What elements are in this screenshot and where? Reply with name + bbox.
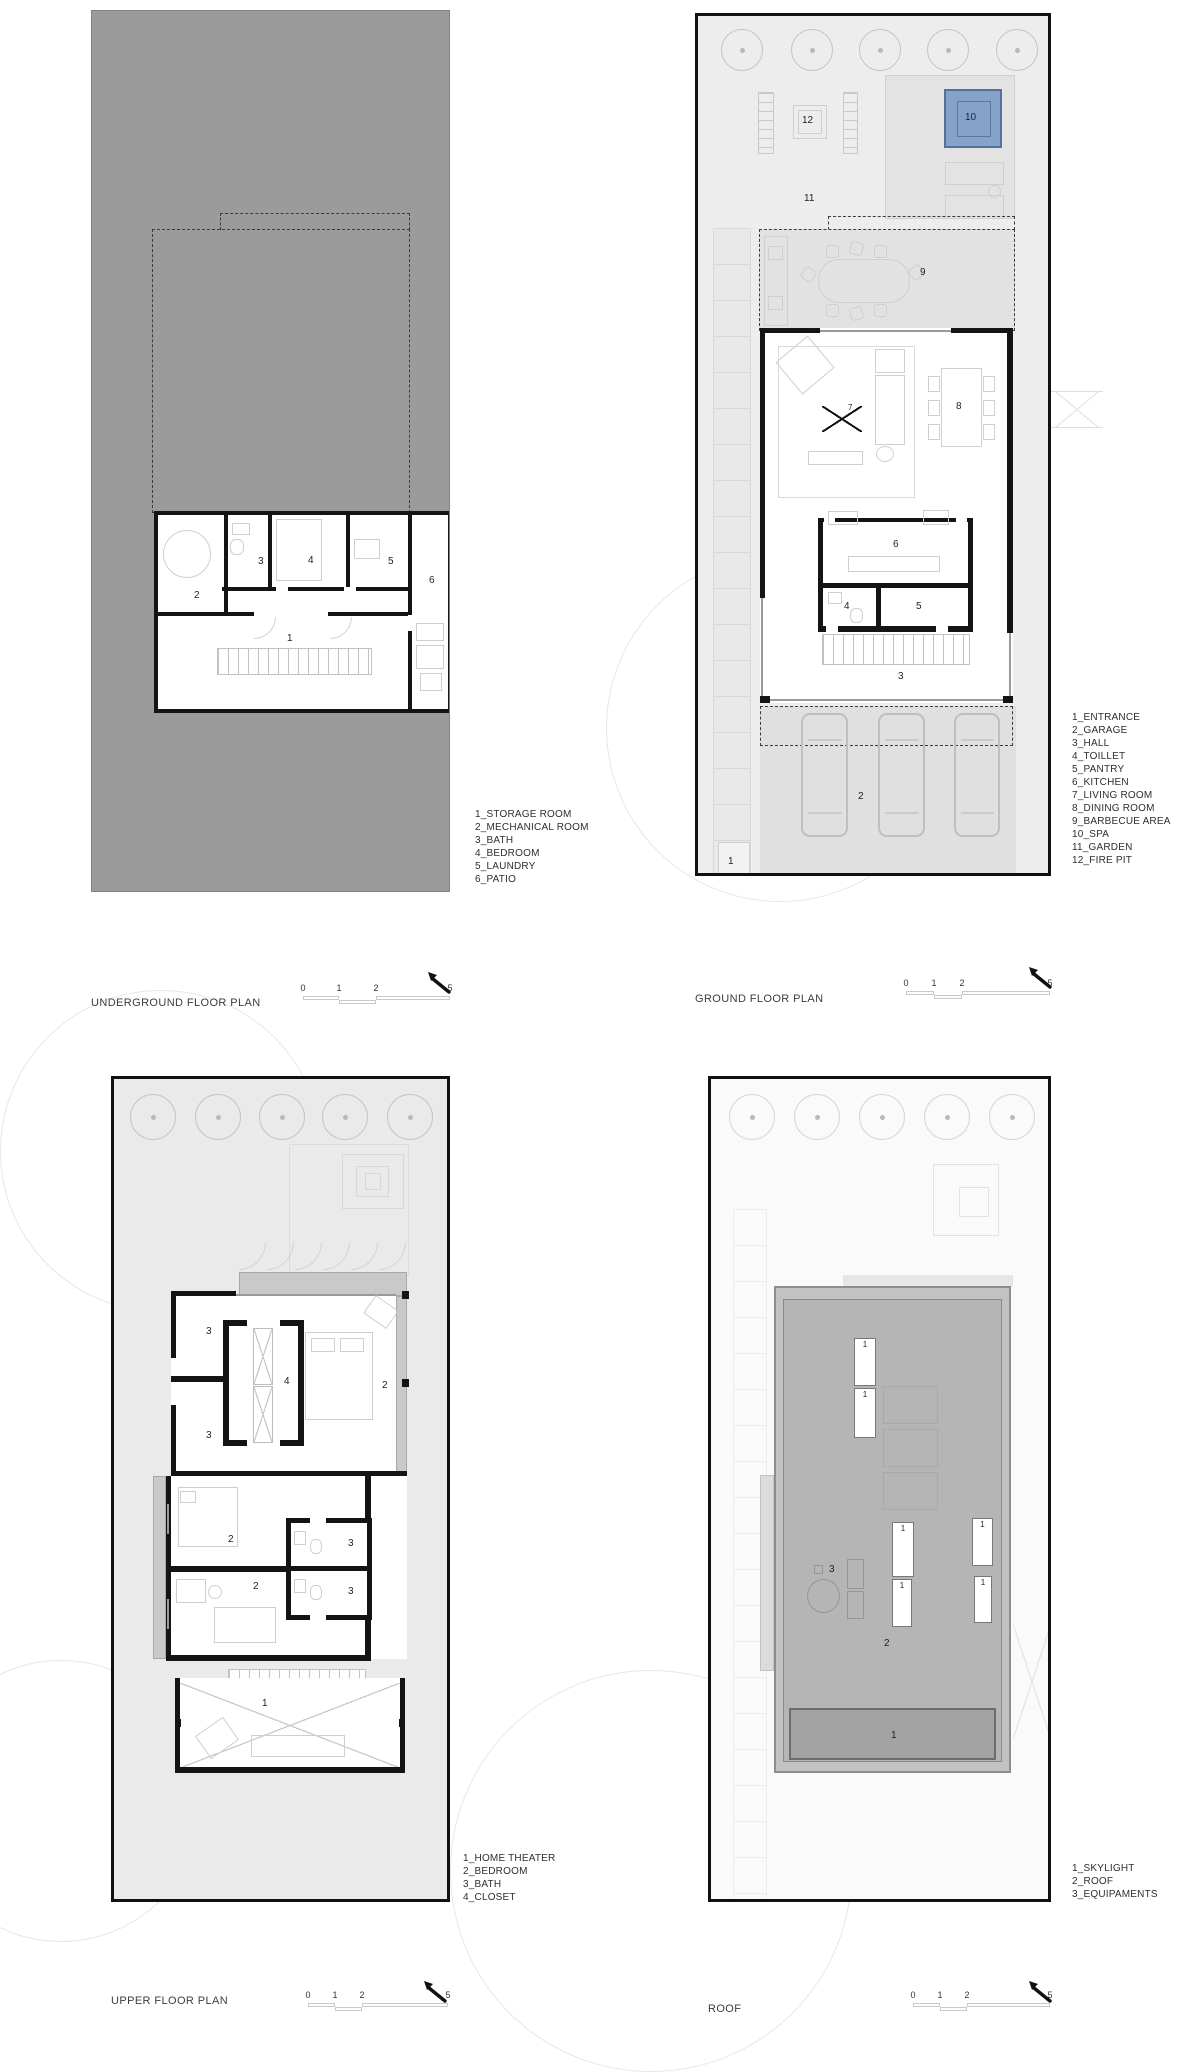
plan-title-underground: UNDERGROUND FLOOR PLAN bbox=[91, 997, 261, 1009]
skylight-label: 1 bbox=[863, 1390, 867, 1399]
room-number-label: 8 bbox=[956, 402, 962, 412]
room-number-label: 5 bbox=[388, 557, 394, 567]
skylight-label: 1 bbox=[900, 1581, 904, 1590]
chair bbox=[983, 376, 995, 392]
legend-item: 10_SPA bbox=[1072, 828, 1171, 841]
wall bbox=[818, 518, 823, 628]
glazing-line bbox=[761, 598, 763, 698]
legend-item: 3_HALL bbox=[1072, 737, 1171, 750]
tree-icon bbox=[859, 1094, 905, 1140]
legend-item: 5_LAUNDRY bbox=[475, 860, 589, 873]
skylight: 1 bbox=[972, 1518, 993, 1566]
wall bbox=[288, 587, 344, 591]
chair bbox=[826, 304, 839, 317]
legend-item: 1_SKYLIGHT bbox=[1072, 1862, 1158, 1875]
tree-icon bbox=[989, 1094, 1035, 1140]
glazing-line bbox=[236, 1294, 396, 1296]
side-table bbox=[876, 446, 894, 462]
glazing-line bbox=[167, 1599, 169, 1629]
wall bbox=[224, 515, 228, 616]
desk bbox=[176, 1579, 206, 1603]
room-number-label: 3 bbox=[348, 1587, 354, 1597]
patio-furniture bbox=[420, 673, 442, 691]
room-number-label: 2 bbox=[884, 1639, 890, 1649]
equipment-box bbox=[814, 1565, 823, 1574]
glazing-line bbox=[167, 1504, 169, 1534]
wall bbox=[223, 1320, 229, 1446]
wall bbox=[818, 626, 973, 632]
wall bbox=[175, 1767, 405, 1773]
kitchen-sink bbox=[828, 511, 858, 525]
glazing-line bbox=[770, 699, 1003, 701]
bath-sink bbox=[232, 523, 250, 535]
wall bbox=[760, 328, 820, 333]
legend-item: 2_ROOF bbox=[1072, 1875, 1158, 1888]
toilet-fixture bbox=[310, 1585, 322, 1600]
legend-item: 2_BEDROOM bbox=[463, 1865, 555, 1878]
pillow bbox=[180, 1491, 196, 1503]
tree-icon bbox=[130, 1094, 176, 1140]
tree-icon bbox=[859, 29, 901, 71]
wardrobe bbox=[253, 1328, 273, 1385]
room-number-label: 4 bbox=[308, 556, 314, 566]
room-number-label: 4 bbox=[284, 1377, 290, 1387]
tree-icon bbox=[924, 1094, 970, 1140]
skylight: 1 bbox=[854, 1388, 876, 1438]
eave-band bbox=[760, 1475, 774, 1671]
legend-item: 11_GARDEN bbox=[1072, 841, 1171, 854]
wall bbox=[408, 631, 412, 711]
room-number-label: 1 bbox=[728, 857, 734, 867]
tree-icon bbox=[387, 1094, 433, 1140]
section-marker bbox=[822, 406, 862, 432]
scale-tick: 0 bbox=[305, 1990, 310, 2000]
legend-item: 4_BEDROOM bbox=[475, 847, 589, 860]
chair bbox=[928, 376, 940, 392]
underground-plan-panel: 1 2 3 4 5 6 bbox=[91, 10, 450, 892]
room-number-label: 4 bbox=[844, 602, 850, 612]
paver-path bbox=[713, 228, 751, 873]
legend-item: 1_HOME THEATER bbox=[463, 1852, 555, 1865]
scale-segment bbox=[934, 995, 962, 999]
wardrobe bbox=[253, 1386, 273, 1443]
legend-item: 1_ENTRANCE bbox=[1072, 711, 1171, 724]
scale-tick: 2 bbox=[964, 1990, 969, 2000]
room-number-label: 3 bbox=[348, 1539, 354, 1549]
glazing-line bbox=[1009, 633, 1011, 698]
toilet-sink bbox=[828, 592, 842, 604]
room-number-label: 2 bbox=[253, 1582, 259, 1592]
scale-tick: 0 bbox=[300, 983, 305, 993]
legend-item: 12_FIRE PIT bbox=[1072, 854, 1171, 867]
sofa bbox=[251, 1735, 345, 1757]
barbecue-grill bbox=[768, 246, 783, 260]
entrance-step bbox=[718, 842, 750, 875]
wall bbox=[171, 1376, 225, 1382]
wall bbox=[356, 587, 408, 591]
skylight-band: 1 bbox=[789, 1708, 996, 1760]
scale-tick: 2 bbox=[959, 978, 964, 988]
scale-tick: 0 bbox=[903, 978, 908, 988]
skylight-label: 1 bbox=[980, 1520, 984, 1529]
ground-plan-panel: 7 8 6 4 5 3 2 1 11 12 10 9 bbox=[695, 13, 1051, 876]
tree-icon bbox=[791, 29, 833, 71]
scale-segment bbox=[940, 2007, 967, 2011]
legend-item: 4_CLOSET bbox=[463, 1891, 555, 1904]
wall bbox=[408, 515, 412, 615]
bed-outline bbox=[276, 519, 322, 581]
plan-title-upper: UPPER FLOOR PLAN bbox=[111, 1995, 228, 2007]
room-number-label: 5 bbox=[916, 602, 922, 612]
legend-item: 3_EQUIPAMENTS bbox=[1072, 1888, 1158, 1901]
sofa bbox=[875, 375, 905, 445]
scale-tick: 2 bbox=[359, 1990, 364, 2000]
room-number-label: 3 bbox=[898, 672, 904, 682]
legend-item: 3_BATH bbox=[463, 1878, 555, 1891]
chair bbox=[874, 304, 887, 317]
building-outline-dashed bbox=[152, 229, 410, 513]
chair bbox=[928, 400, 940, 416]
pillow bbox=[311, 1338, 335, 1352]
roof-hatch-outline bbox=[883, 1386, 938, 1424]
toilet-fixture bbox=[310, 1539, 322, 1554]
scale-segment bbox=[303, 996, 339, 1000]
wall bbox=[171, 1291, 176, 1358]
barbecue-sink bbox=[768, 296, 783, 310]
wall bbox=[818, 583, 973, 588]
steel-column bbox=[402, 1379, 409, 1387]
wall bbox=[166, 1655, 371, 1661]
skylight: 1 bbox=[974, 1576, 992, 1623]
wall bbox=[166, 1566, 286, 1572]
roof-legend: 1_SKYLIGHT 2_ROOF 3_EQUIPAMENTS bbox=[1072, 1862, 1158, 1901]
legend-item: 6_KITCHEN bbox=[1072, 776, 1171, 789]
laundry-machine bbox=[354, 539, 380, 559]
legend-item: 3_BATH bbox=[475, 834, 589, 847]
door-opening bbox=[936, 626, 948, 632]
wall bbox=[280, 1440, 304, 1446]
tree-icon bbox=[996, 29, 1038, 71]
bed-outline bbox=[214, 1607, 276, 1643]
scale-segment bbox=[913, 2003, 940, 2007]
room-number-label: 9 bbox=[920, 268, 926, 278]
pillow bbox=[340, 1338, 364, 1352]
north-arrow-icon bbox=[424, 968, 454, 998]
covered-area-dashed bbox=[828, 216, 1015, 230]
glazing-line bbox=[820, 330, 951, 332]
tree-icon bbox=[195, 1094, 241, 1140]
wall bbox=[223, 1320, 247, 1326]
room-number-label: 2 bbox=[382, 1381, 388, 1391]
north-arrow-icon bbox=[1025, 1977, 1055, 2007]
room-number-label: 12 bbox=[802, 116, 813, 126]
equipment-unit bbox=[847, 1591, 864, 1619]
building-outline-dashed bbox=[220, 213, 410, 230]
legend-item: 6_PATIO bbox=[475, 873, 589, 886]
room-number-label: 6 bbox=[893, 540, 899, 550]
wall bbox=[876, 583, 881, 631]
stove bbox=[923, 510, 949, 525]
architectural-sheet: { "document": { "background": "#ffffff" … bbox=[0, 0, 1200, 2052]
equipment-tank bbox=[807, 1579, 840, 1613]
roof-plan-panel: 1 1 1 1 1 1 3 2 1 bbox=[708, 1076, 1051, 1902]
wall bbox=[223, 1440, 247, 1446]
legend-item: 1_STORAGE ROOM bbox=[475, 808, 589, 821]
patio-furniture bbox=[416, 645, 444, 669]
toilet-fixture bbox=[230, 539, 244, 555]
bench bbox=[808, 451, 863, 465]
wall bbox=[171, 1405, 176, 1471]
wall bbox=[222, 587, 276, 591]
wall bbox=[760, 696, 770, 703]
scale-tick: 1 bbox=[931, 978, 936, 988]
chair bbox=[928, 424, 940, 440]
wall bbox=[346, 515, 350, 587]
outdoor-table bbox=[818, 259, 910, 303]
lounger bbox=[758, 92, 774, 154]
room-number-label: 2 bbox=[194, 591, 200, 601]
storage-shelving bbox=[217, 648, 372, 675]
room-number-label: 1 bbox=[287, 634, 293, 644]
tree-icon bbox=[322, 1094, 368, 1140]
room-number-label: 3 bbox=[206, 1431, 212, 1441]
skylight-label: 1 bbox=[981, 1578, 985, 1587]
room-number-label: 3 bbox=[206, 1327, 212, 1337]
roof-hatch-outline bbox=[883, 1472, 938, 1510]
room-number-label: 11 bbox=[804, 194, 814, 204]
scale-segment bbox=[906, 991, 934, 995]
equipment-unit bbox=[847, 1559, 864, 1589]
tree-icon bbox=[259, 1094, 305, 1140]
room-number-label: 2 bbox=[228, 1535, 234, 1545]
scale-tick: 1 bbox=[336, 983, 341, 993]
bath-sink bbox=[294, 1531, 306, 1545]
upper-plan-panel: 3 3 4 2 2 2 3 3 1 bbox=[111, 1076, 450, 1902]
spa-ghost-outline bbox=[365, 1173, 381, 1190]
door-opening bbox=[310, 1615, 326, 1620]
spa-ghost-outline bbox=[959, 1187, 989, 1217]
scale-tick: 1 bbox=[937, 1990, 942, 2000]
door-opening bbox=[310, 1518, 326, 1523]
room-number-label: 3 bbox=[258, 557, 264, 567]
legend-item: 2_GARAGE bbox=[1072, 724, 1171, 737]
chair bbox=[983, 400, 995, 416]
bath-sink bbox=[294, 1579, 306, 1593]
wall bbox=[1007, 328, 1013, 633]
tree-icon bbox=[721, 29, 763, 71]
north-arrow-icon bbox=[420, 1977, 450, 2007]
underground-legend: 1_STORAGE ROOM 2_MECHANICAL ROOM 3_BATH … bbox=[475, 808, 589, 886]
wall bbox=[328, 612, 408, 616]
legend-item: 4_TOILLET bbox=[1072, 750, 1171, 763]
tree-icon bbox=[729, 1094, 775, 1140]
stairs bbox=[822, 634, 970, 665]
north-arrow-icon bbox=[1025, 963, 1055, 993]
skylight: 1 bbox=[854, 1338, 876, 1386]
room-number-label: 2 bbox=[858, 792, 864, 802]
tree-icon bbox=[927, 29, 969, 71]
scale-tick: 0 bbox=[910, 1990, 915, 2000]
tree-icon bbox=[794, 1094, 840, 1140]
room-number-label: 3 bbox=[829, 1565, 835, 1575]
room-number-label: 10 bbox=[965, 113, 976, 123]
car bbox=[801, 713, 848, 837]
deck-side-table bbox=[988, 185, 1001, 198]
armchair bbox=[875, 349, 905, 373]
kitchen-island bbox=[848, 556, 940, 572]
steel-column bbox=[399, 1719, 405, 1727]
ground-legend: 1_ENTRANCE 2_GARAGE 3_HALL 4_TOILLET 5_P… bbox=[1072, 711, 1171, 867]
car bbox=[954, 713, 1000, 837]
wall bbox=[280, 1320, 304, 1326]
deck-lounger bbox=[945, 162, 1004, 185]
chair bbox=[849, 306, 864, 321]
steel-column bbox=[175, 1719, 181, 1727]
plan-title-ground: GROUND FLOOR PLAN bbox=[695, 993, 823, 1005]
site-ghost-cross bbox=[1013, 1624, 1051, 1739]
wall bbox=[968, 518, 973, 628]
wall bbox=[158, 612, 254, 616]
scale-segment bbox=[339, 1000, 376, 1004]
steel-column bbox=[402, 1291, 409, 1299]
legend-item: 9_BARBECUE AREA bbox=[1072, 815, 1171, 828]
room-number-label: 6 bbox=[429, 576, 435, 586]
scale-tick: 2 bbox=[373, 983, 378, 993]
wall bbox=[298, 1320, 304, 1446]
chair bbox=[826, 245, 839, 258]
upper-legend: 1_HOME THEATER 2_BEDROOM 3_BATH 4_CLOSET bbox=[463, 1852, 555, 1904]
skylight: 1 bbox=[892, 1522, 914, 1577]
louver-arc bbox=[239, 1242, 266, 1270]
chair bbox=[874, 245, 887, 258]
scale-tick: 1 bbox=[332, 1990, 337, 2000]
wall bbox=[268, 515, 272, 587]
wall bbox=[286, 1566, 372, 1571]
wall bbox=[171, 1291, 236, 1296]
wall bbox=[1003, 696, 1013, 703]
toilet-fixture bbox=[850, 608, 863, 623]
legend-item: 5_PANTRY bbox=[1072, 763, 1171, 776]
scale-segment bbox=[335, 2007, 362, 2011]
chair bbox=[208, 1585, 222, 1599]
plan-title-roof: ROOF bbox=[708, 2003, 741, 2015]
room-number-label: 7 bbox=[848, 404, 852, 412]
wall bbox=[760, 328, 765, 598]
room-number-label: 1 bbox=[891, 1731, 897, 1741]
scale-segment bbox=[308, 2003, 335, 2007]
car bbox=[878, 713, 925, 837]
door-opening bbox=[826, 626, 838, 632]
patio-furniture bbox=[416, 623, 444, 641]
eave-band bbox=[153, 1476, 166, 1659]
roof-hatch-outline bbox=[883, 1429, 938, 1467]
eave-band bbox=[239, 1272, 407, 1296]
driveway-cross bbox=[1055, 391, 1099, 428]
skylight: 1 bbox=[892, 1579, 912, 1627]
lounger bbox=[843, 92, 858, 154]
door-opening bbox=[956, 518, 967, 522]
legend-item: 2_MECHANICAL ROOM bbox=[475, 821, 589, 834]
legend-item: 7_LIVING ROOM bbox=[1072, 789, 1171, 802]
chair bbox=[983, 424, 995, 440]
water-tank bbox=[163, 530, 211, 578]
skylight-label: 1 bbox=[901, 1524, 905, 1533]
room-number-label: 1 bbox=[262, 1699, 268, 1709]
wall bbox=[951, 328, 1013, 333]
skylight-label: 1 bbox=[863, 1340, 867, 1349]
legend-item: 8_DINING ROOM bbox=[1072, 802, 1171, 815]
